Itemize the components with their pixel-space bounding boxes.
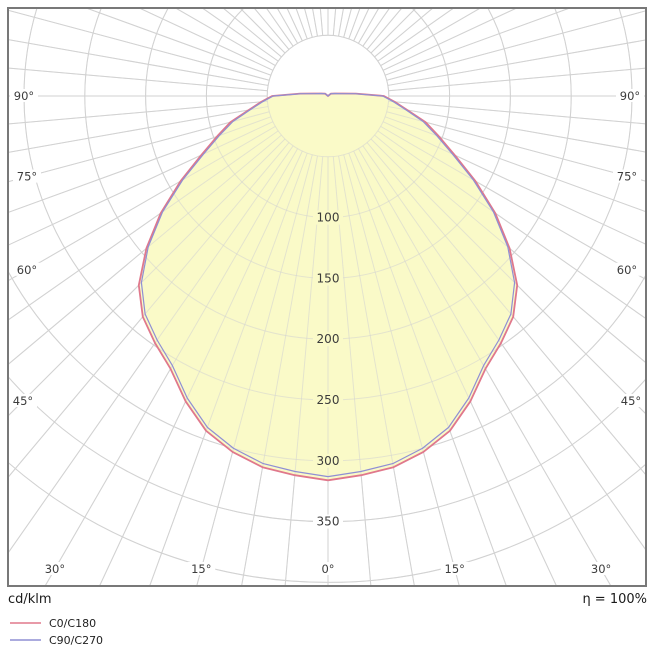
angle-label: 30° (45, 562, 65, 576)
radial-gridline-overlay (0, 41, 267, 91)
angle-label: 90° (620, 89, 640, 103)
radial-gridline-overlay (378, 0, 655, 61)
radial-gridline (389, 41, 655, 91)
legend: C0/C180 C90/C270 (10, 617, 103, 647)
radial-gridline-overlay (0, 0, 269, 80)
radial-gridline (12, 0, 298, 43)
radial-gridline (0, 41, 267, 91)
plot-area: 10015020025030035090°90°75°75°60°60°45°4… (0, 0, 655, 655)
angle-label: 45° (621, 394, 641, 408)
radial-gridline-overlay (112, 0, 307, 39)
angle-label: 60° (617, 263, 637, 277)
radial-gridline (339, 0, 438, 36)
angle-label: 0° (321, 562, 334, 576)
radial-gridline-overlay (383, 0, 655, 70)
radial-gridline-overlay (349, 0, 544, 39)
radial-gridline-overlay (339, 0, 438, 36)
ring-label: 250 (317, 393, 340, 407)
radial-gridline (0, 0, 278, 61)
radial-gridline-overlay (389, 41, 655, 91)
ring-label: 200 (317, 332, 340, 346)
ring-label: 350 (317, 515, 340, 529)
radial-gridline-overlay (0, 0, 273, 70)
radial-gridline-overlay (0, 0, 278, 61)
radial-gridline (0, 0, 268, 85)
radial-gridline (383, 0, 655, 70)
radial-gridline (344, 0, 492, 37)
radial-gridline (378, 0, 655, 61)
radial-gridline (363, 0, 655, 46)
radial-gridline (388, 0, 655, 85)
radial-gridline-overlay (385, 0, 655, 75)
radial-gridline (385, 0, 655, 75)
radial-gridline-overlay (164, 0, 312, 37)
efficiency-label: η = 100% (582, 592, 647, 607)
ring-label: 300 (317, 454, 340, 468)
radial-gridline (164, 0, 312, 37)
angle-label: 30° (591, 562, 611, 576)
radial-gridline (358, 0, 644, 43)
radial-gridline (0, 0, 293, 46)
radial-gridline (0, 0, 273, 70)
radial-gridline (387, 0, 655, 80)
radial-gridline-overlay (0, 0, 275, 66)
radial-gridline-overlay (0, 0, 268, 85)
radial-gridline-overlay (0, 0, 271, 75)
radial-gridline-overlay (218, 0, 317, 36)
radial-gridline (0, 0, 269, 80)
angle-label: 15° (445, 562, 465, 576)
radial-gridline (0, 0, 275, 66)
radial-gridline-overlay (12, 0, 298, 43)
angle-label: 45° (13, 394, 33, 408)
angle-label: 90° (14, 89, 34, 103)
radial-gridline-overlay (387, 0, 655, 80)
radial-gridline-overlay (363, 0, 655, 46)
radial-gridline (218, 0, 317, 36)
radial-gridline (381, 0, 655, 66)
radial-gridline-overlay (358, 0, 644, 43)
angle-label: 60° (17, 263, 37, 277)
polar-photometric-chart: 10015020025030035090°90°75°75°60°60°45°4… (0, 0, 655, 655)
photometric-diagram: 10015020025030035090°90°75°75°60°60°45°4… (0, 0, 655, 655)
ring-label: 100 (317, 211, 340, 225)
radial-gridline-overlay (344, 0, 492, 37)
units-label: cd/klm (8, 592, 52, 607)
radial-gridline-overlay (381, 0, 655, 66)
radial-gridline (349, 0, 544, 39)
radial-gridline-overlay (388, 0, 655, 85)
ring-label: 150 (317, 271, 340, 285)
legend-label-c0-c180: C0/C180 (49, 617, 96, 630)
radial-gridline-overlay (0, 0, 293, 46)
angle-label: 15° (191, 562, 211, 576)
angle-label: 75° (17, 170, 37, 184)
radial-gridline (112, 0, 307, 39)
legend-label-c90-c270: C90/C270 (49, 634, 103, 647)
radial-gridline (0, 0, 271, 75)
angle-label: 75° (617, 170, 637, 184)
